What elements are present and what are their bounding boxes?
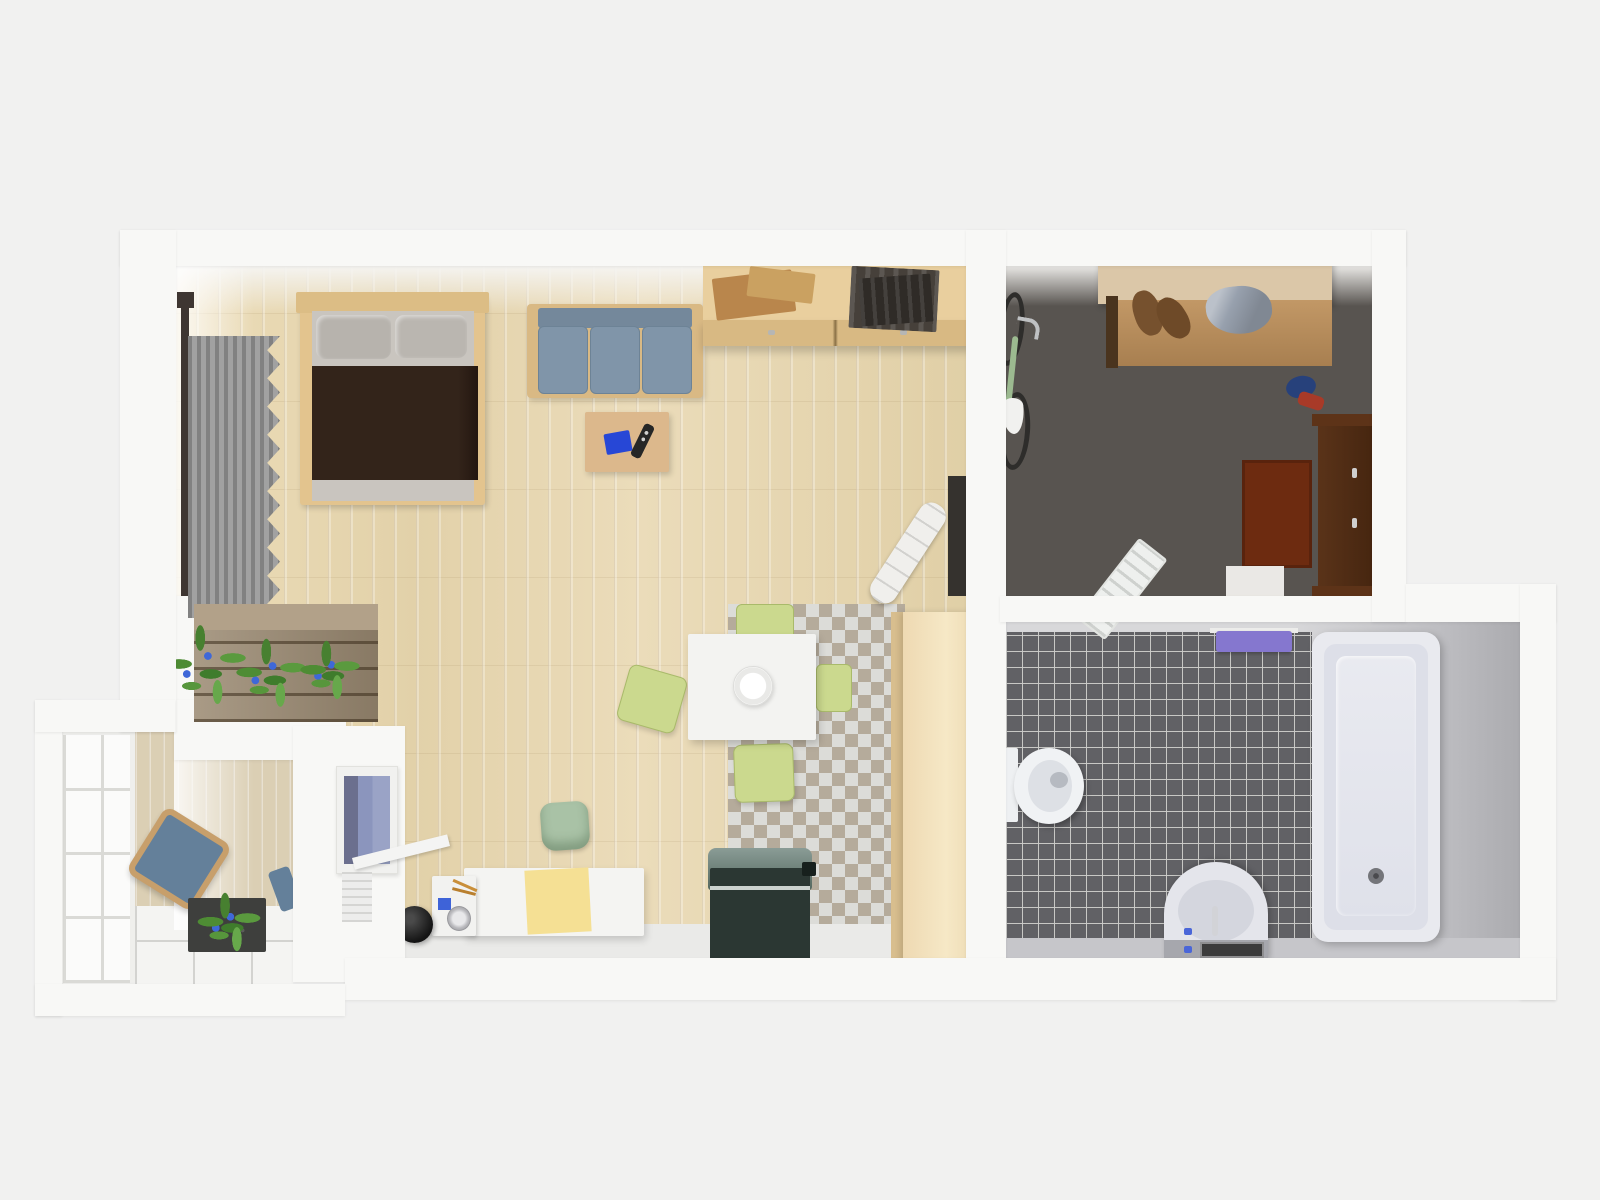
organizer-blue-note xyxy=(438,898,451,910)
desk-chair xyxy=(539,800,590,851)
sink-faucet xyxy=(1212,906,1218,936)
crate-plant-2 xyxy=(232,634,310,714)
bed-blanket xyxy=(312,366,478,480)
curtain xyxy=(188,336,280,618)
hall-corner-box xyxy=(1226,566,1284,598)
wall-balcony-left xyxy=(35,700,62,1016)
fruit-bowl xyxy=(733,666,773,706)
kitchen-tall-cabinet xyxy=(903,612,975,962)
bed-pillow-left xyxy=(316,315,391,359)
soap-blue-2 xyxy=(1184,946,1192,953)
dining-chair-right xyxy=(816,664,852,712)
laundry-chest-seam xyxy=(710,886,810,890)
sideboard-handle-2 xyxy=(900,330,907,335)
wall-top xyxy=(120,230,1406,266)
wardrobe-top-flare xyxy=(1312,414,1378,426)
wall-left xyxy=(120,230,176,732)
desk-paper-yellow xyxy=(524,867,591,934)
sofa-cushion-3 xyxy=(642,326,692,394)
book-blue xyxy=(603,430,632,455)
wall-hall-right xyxy=(1372,230,1406,622)
soap-blue-1 xyxy=(1184,928,1192,935)
toilet-flush xyxy=(1050,772,1068,788)
hall-rug xyxy=(1242,460,1312,568)
sink-mat xyxy=(1200,942,1264,958)
wall-bath-right xyxy=(1520,584,1556,1000)
sofa-backrest xyxy=(538,308,692,328)
bed-pillow-right xyxy=(395,315,467,358)
bathtub-drain xyxy=(1368,868,1384,884)
wall-balcony-top xyxy=(35,700,175,732)
wall-divider-horizontal xyxy=(1000,596,1406,622)
sofa-cushion-1 xyxy=(538,326,588,394)
towel-purple xyxy=(1216,631,1292,652)
toilet-seat-inner xyxy=(1028,760,1072,812)
radiator xyxy=(342,872,372,922)
wardrobe-handle-2 xyxy=(1352,518,1357,528)
pen-cup xyxy=(447,906,471,931)
curtain-bracket-top xyxy=(177,292,194,308)
floor-plan-render xyxy=(0,0,1600,1200)
wardrobe-handle-1 xyxy=(1352,468,1357,478)
dining-chair-bottom xyxy=(733,743,795,803)
sideboard-handle-1 xyxy=(768,330,775,335)
hall-bench-leg xyxy=(1106,296,1118,368)
balcony-glazing xyxy=(58,730,135,988)
wall-balcony-bottom xyxy=(35,984,345,1016)
wardrobe xyxy=(1318,422,1376,592)
laundry-chest-latch xyxy=(802,862,816,876)
sofa-cushion-2 xyxy=(590,326,640,394)
crate-plant-3 xyxy=(300,640,360,702)
bed-headboard xyxy=(296,292,489,313)
wall-bottom xyxy=(345,958,1556,1000)
laundry-chest-body xyxy=(710,868,810,966)
balcony-plant xyxy=(196,892,262,954)
folded-blankets-dark xyxy=(858,274,933,327)
